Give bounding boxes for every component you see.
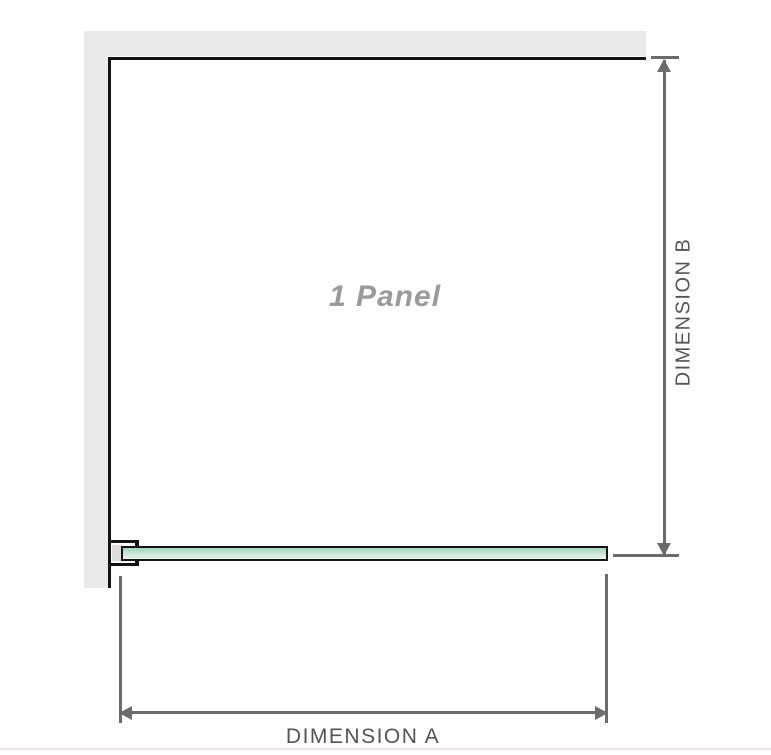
panel-count-title: 1 Panel <box>329 280 441 314</box>
dimension-a-line <box>123 711 605 714</box>
wall-left-strip <box>84 31 108 588</box>
panel-top-edge <box>108 57 646 60</box>
glass-panel-bar <box>121 546 608 561</box>
arrow-up-icon <box>657 59 671 72</box>
arrow-down-icon <box>657 543 671 556</box>
panel-left-edge <box>108 57 111 588</box>
dimension-a-right-extension-line <box>605 574 608 723</box>
dimension-a-left-extension-line <box>119 576 122 723</box>
wall-ceiling-strip <box>84 31 646 56</box>
dimension-b-label: DIMENSION B <box>673 238 696 387</box>
shower-panel-diagram: DIMENSION B DIMENSION A 1 Panel <box>0 0 771 755</box>
dimension-b-line <box>663 60 666 556</box>
arrow-left-icon <box>119 706 132 720</box>
dimension-a-label: DIMENSION A <box>286 725 440 749</box>
image-bottom-artifact <box>0 748 771 750</box>
arrow-right-icon <box>595 706 608 720</box>
